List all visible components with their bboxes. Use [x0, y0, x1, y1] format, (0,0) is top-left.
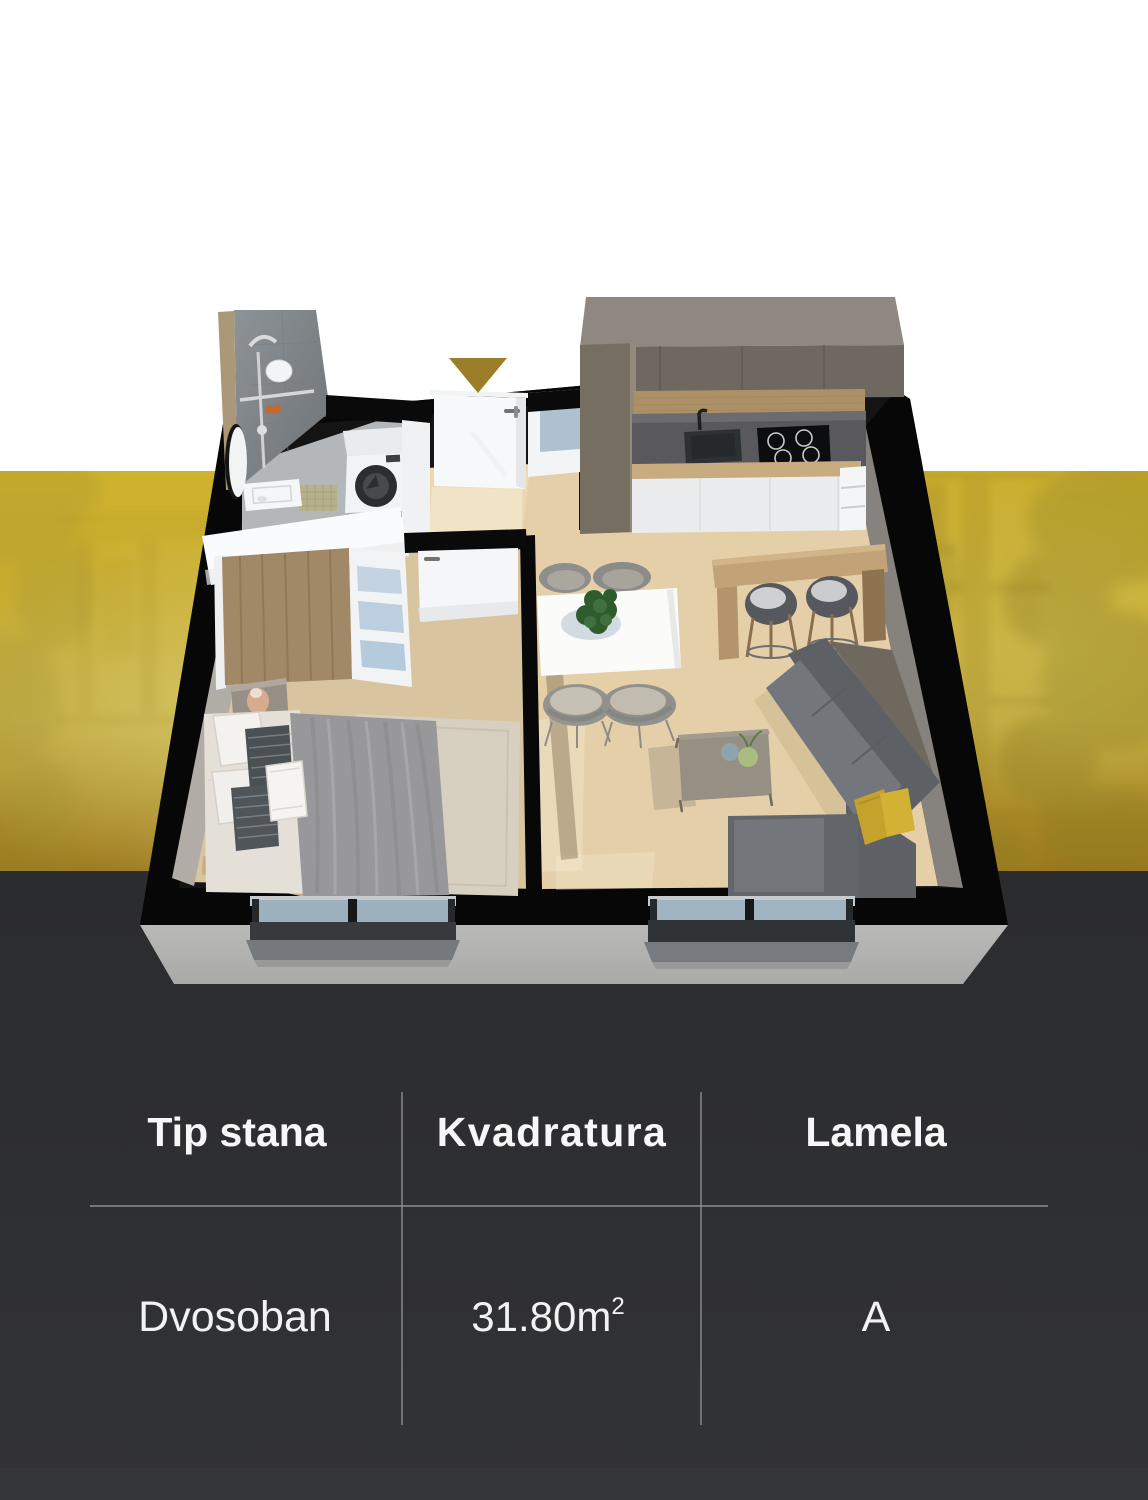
svg-text:Dvosoban: Dvosoban [138, 1293, 332, 1341]
svg-text:31.80m2: 31.80m2 [471, 1293, 624, 1340]
svg-text:Kvadratura: Kvadratura [437, 1109, 667, 1155]
svg-text:Tip stana: Tip stana [147, 1109, 327, 1155]
svg-text:Lamela: Lamela [805, 1109, 947, 1155]
svg-text:A: A [862, 1293, 891, 1341]
